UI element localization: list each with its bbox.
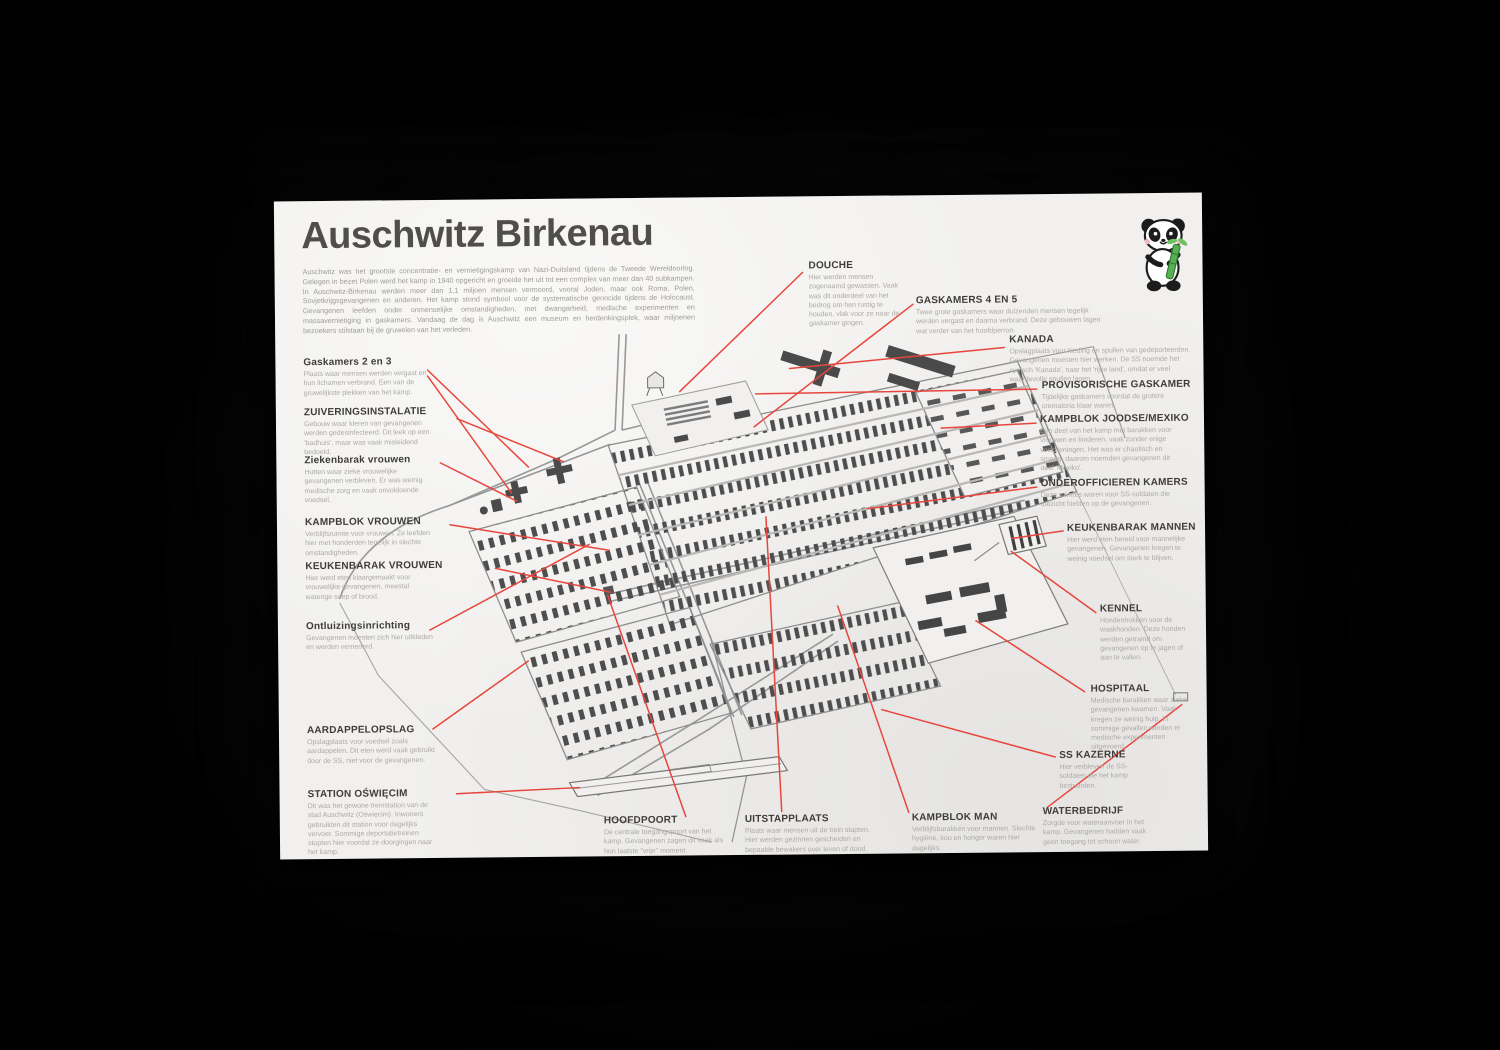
leader-line-douche	[679, 272, 804, 391]
label-gaskamers-4-5: GASKAMERS 4 EN 5 Twee grote gaskamers wa…	[916, 293, 1106, 336]
label-desc: Gebouw waar kleren van gevangenen werden…	[304, 419, 432, 457]
label-kennel: KENNEL Hondenhokken voor de waakhonden. …	[1100, 603, 1196, 663]
leader-line-gaskamers-2-3b	[428, 375, 512, 494]
label-title: Gaskamers 2 en 3	[303, 356, 431, 368]
intro-paragraph: Auschwitz was het grootste concentratie-…	[302, 263, 695, 335]
label-hospitaal: HOSPITAAL Medische barakken waar zieke g…	[1091, 683, 1192, 753]
label-desc: Plaats waar mensen werden vergast en hun…	[303, 369, 431, 398]
label-title: UITSTAPPLAATS	[745, 813, 877, 825]
label-title: STATION OŚWIĘCIM	[308, 788, 440, 800]
label-desc: Hutten waar zieke vrouwelijke gevangenen…	[304, 467, 432, 505]
label-provisorische-gaskamer: PROVISORISCHE GASKAMER Tijdelijke gaskam…	[1042, 379, 1177, 412]
station-building	[569, 757, 787, 797]
label-title: Ontluizingsinrichting	[306, 620, 434, 632]
label-onderofficieren-kamers: ONDEROFFICIEREN KAMERS Deze ruimtes ware…	[1041, 477, 1181, 510]
label-hoofdpoort: HOOFDPOORT De centrale toegangspoort van…	[604, 814, 726, 856]
label-desc: Zorgde voor wateraanvoer in het kamp. Ge…	[1043, 818, 1153, 847]
label-title: PROVISORISCHE GASKAMER	[1042, 379, 1177, 391]
label-desc: Plaats waar mensen uit de trein stapten.…	[745, 826, 877, 855]
poster-title: Auschwitz Birkenau	[301, 212, 653, 258]
leader-line-station	[457, 788, 580, 794]
label-desc: Hier werd eten bereid voor mannelijke ge…	[1067, 535, 1192, 564]
label-title: GASKAMERS 4 EN 5	[916, 293, 1106, 306]
label-kampblok-joodse-mexiko: KAMPBLOK JOODSE/MEXIKO Een deel van het …	[1040, 413, 1183, 474]
label-zuiveringsinstalatie: ZUIVERINGSINSTALATIE Gebouw waar kleren …	[304, 406, 432, 457]
label-desc: Tijdelijke gaskamers voordat de grotere …	[1042, 392, 1177, 412]
label-title: KAMPBLOK MAN	[912, 811, 1037, 823]
label-kanada: KANADA Opslagplaats voor kleding en spul…	[1009, 333, 1197, 385]
label-desc: Hier werden mensen zogenaamd gewassen. V…	[809, 272, 905, 329]
label-desc: Hier werd eten klaargemaakt voor vrouwel…	[305, 573, 433, 602]
guard-house-icon	[648, 372, 664, 388]
label-title: SS KAZERNE	[1059, 749, 1139, 761]
label-desc: Hier verbleven de SS-soldaten die het ka…	[1059, 762, 1139, 791]
label-kampblok-man: KAMPBLOK MAN Verblijfsbarakken voor mann…	[912, 811, 1037, 853]
label-uitstapplaats: UITSTAPPLAATS Plaats waar mensen uit de …	[745, 813, 877, 855]
label-desc: Verblijfsbarakken voor mannen. Slechte h…	[912, 824, 1037, 853]
label-desc: Een deel van het kamp met barakken voor …	[1040, 426, 1182, 474]
label-title: KENNEL	[1100, 603, 1195, 615]
label-title: ONDEROFFICIEREN KAMERS	[1041, 477, 1181, 489]
label-desc: Deze ruimtes waren voor SS-soldaten die …	[1041, 490, 1181, 510]
label-desc: Dit was het gewone treinstation van de s…	[308, 801, 441, 858]
leader-line-ss-kazerne	[882, 708, 1055, 759]
label-desc: Medische barakken waar zieke gevangenen …	[1091, 696, 1192, 753]
panda-logo	[1134, 215, 1193, 294]
label-station-oswiecim: STATION OŚWIĘCIM Dit was het gewone trei…	[308, 788, 441, 858]
label-title: DOUCHE	[808, 259, 903, 271]
label-title: ZUIVERINGSINSTALATIE	[304, 406, 432, 418]
black-background: Auschwitz Birkenau Auschwitz was het gro…	[0, 0, 1500, 1050]
label-title: AARDAPPELOPSLAG	[307, 724, 435, 736]
label-keukenbarak-vrouwen: KEUKENBARAK VROUWEN Hier werd eten klaar…	[305, 560, 433, 602]
label-title: KANADA	[1009, 333, 1197, 346]
poster-sheet: Auschwitz Birkenau Auschwitz was het gro…	[274, 193, 1208, 860]
leader-line-gaskamers-2-3a	[427, 369, 528, 468]
label-desc: De centrale toegangspoort van het kamp. …	[604, 827, 726, 856]
label-gaskamers-2-3: Gaskamers 2 en 3 Plaats waar mensen werd…	[303, 356, 431, 398]
label-title: Ziekenbarak vrouwen	[304, 454, 432, 466]
label-title: KEUKENBARAK VROUWEN	[305, 560, 433, 572]
label-title: WATERBEDRIJF	[1043, 805, 1153, 817]
label-kampblok-vrouwen: KAMPBLOK VROUWEN Verblijfsruimte voor vr…	[305, 516, 433, 558]
leader-line-aardappelopslag	[432, 661, 529, 729]
label-ziekenbarak-vrouwen: Ziekenbarak vrouwen Hutten waar zieke vr…	[304, 454, 432, 505]
cross-shaped-buildings	[479, 455, 575, 514]
label-title: KEUKENBARAK MANNEN	[1067, 522, 1192, 534]
label-title: KAMPBLOK JOODSE/MEXIKO	[1040, 413, 1182, 425]
label-desc: Verblijfsruimte voor vrouwen. Ze leefden…	[305, 529, 433, 558]
label-ontluizingsinrichting: Ontluizingsinrichting Gevangenen moesten…	[306, 620, 434, 653]
label-title: HOOFDPOORT	[604, 814, 726, 826]
label-keukenbarak-mannen: KEUKENBARAK MANNEN Hier werd eten bereid…	[1067, 522, 1192, 564]
label-waterbedrijf: WATERBEDRIJF Zorgde voor wateraanvoer in…	[1043, 805, 1153, 847]
label-title: KAMPBLOK VROUWEN	[305, 516, 433, 528]
label-aardappelopslag: AARDAPPELOPSLAG Opslagplaats voor voedse…	[307, 724, 435, 766]
label-desc: Twee grote gaskamers waar duizenden mens…	[916, 306, 1106, 336]
label-desc: Opslagplaats voor voedsel zoals aardappe…	[307, 737, 435, 766]
label-desc: Gevangenen moesten zich hier uitkleden e…	[306, 633, 434, 653]
label-ss-kazerne: SS KAZERNE Hier verbleven de SS-soldaten…	[1059, 749, 1139, 791]
label-douche: DOUCHE Hier werden mensen zogenaamd gewa…	[808, 259, 904, 329]
label-title: HOSPITAAL	[1091, 683, 1191, 695]
label-desc: Hondenhokken voor de waakhonden. Deze ho…	[1100, 616, 1195, 663]
